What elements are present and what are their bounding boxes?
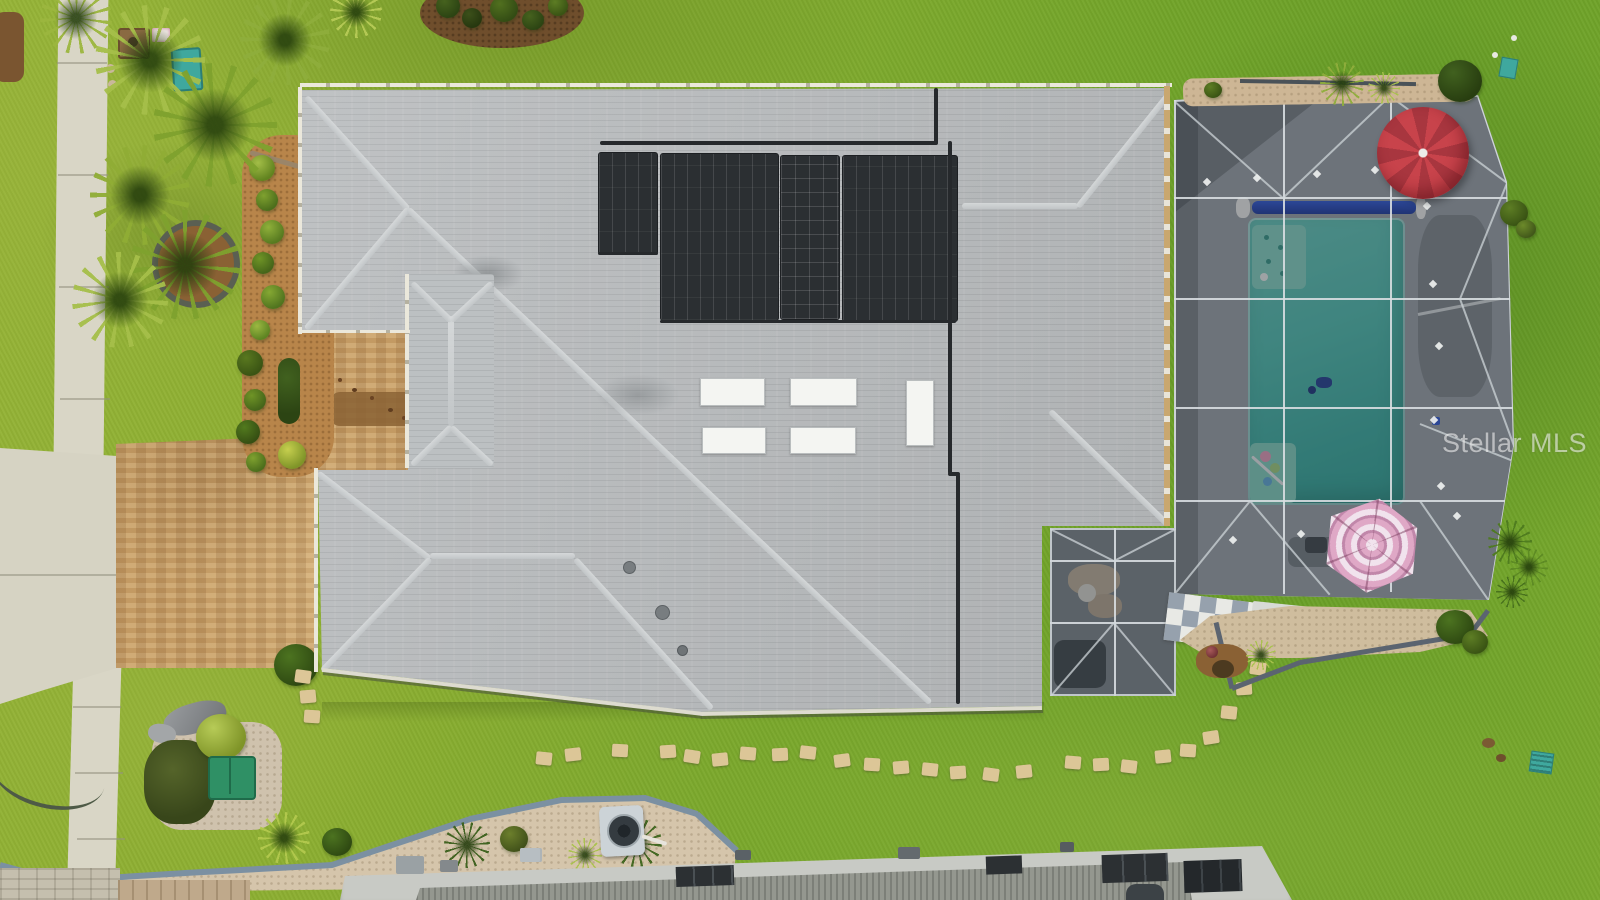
shrub — [256, 189, 278, 211]
solar-panel-array — [598, 152, 658, 255]
roof-equipment — [898, 847, 920, 859]
solar-pipe — [948, 322, 952, 474]
ridge-cap — [430, 553, 575, 559]
side-shrub — [1516, 220, 1536, 238]
solar-pipe — [598, 252, 658, 255]
green-utility-box — [208, 756, 256, 800]
shrub — [237, 350, 263, 376]
cage-mullion — [1283, 95, 1285, 594]
bed-shrub — [1204, 82, 1222, 98]
dark-pit — [1212, 660, 1234, 678]
shrub — [236, 420, 260, 444]
roof-vent — [677, 645, 688, 656]
teal-grate — [1529, 751, 1555, 775]
driveway-apron — [0, 448, 117, 704]
shrub — [261, 285, 285, 309]
ac-fan — [607, 814, 641, 848]
island-plant — [522, 10, 544, 30]
dug-spot — [1496, 754, 1506, 762]
stepping-stone — [535, 751, 552, 766]
stepping-stone — [1154, 749, 1171, 764]
lime-shrub — [196, 714, 246, 760]
stepping-stone — [294, 669, 312, 684]
bed-shrub — [322, 828, 352, 856]
skylight — [790, 378, 857, 406]
green-utility-box-seam — [229, 758, 231, 794]
neighbor-patio-pavers — [118, 880, 250, 900]
skylight — [702, 427, 766, 454]
solar-pipe — [600, 141, 938, 145]
roof-gutter-notch — [300, 330, 410, 333]
stepping-stone — [1220, 705, 1237, 720]
stepping-stone — [1093, 758, 1110, 772]
bed-shrub — [1462, 630, 1488, 654]
teal-box — [1498, 57, 1518, 80]
cage-frame — [1174, 100, 1176, 594]
pool-screen-enclosure — [1168, 85, 1520, 605]
roof-vent — [623, 561, 636, 574]
stepping-stone — [711, 752, 728, 767]
roof-equipment — [735, 850, 751, 860]
ridge-cap — [962, 203, 1078, 209]
stepping-stone — [304, 709, 321, 723]
sprinkler-cap — [1492, 52, 1498, 58]
shrub-column — [278, 358, 300, 424]
roof-stain — [596, 374, 680, 416]
leaf-litter — [370, 396, 374, 400]
driveway-seam — [0, 574, 116, 576]
sidewalk-seam — [73, 706, 121, 708]
sidewalk-seam — [77, 838, 125, 840]
stepping-stone — [864, 757, 881, 771]
solar-panel-array — [660, 153, 779, 321]
stepping-stone — [950, 765, 967, 779]
neighbor-roof-window — [986, 855, 1023, 874]
cage-beam — [1174, 197, 1514, 199]
stepping-stone — [564, 747, 581, 762]
neighbor-roof-window — [1102, 853, 1169, 883]
cage-beam — [1176, 407, 1514, 409]
stepping-stone — [1202, 730, 1220, 745]
stepping-stone — [660, 744, 677, 758]
sidewalk-seam — [60, 398, 110, 400]
neighbor-roof-window — [676, 865, 735, 887]
aerial-photo: Stellar MLS — [0, 0, 1600, 900]
small-equipment-box — [520, 848, 540, 862]
stepping-stone — [683, 749, 701, 764]
palm-frond-tuft — [323, 0, 390, 45]
skylight — [906, 380, 934, 446]
stepping-stone — [982, 767, 1000, 782]
leaf-litter — [388, 408, 393, 412]
solar-pipe — [956, 474, 960, 704]
stepping-stone — [299, 689, 316, 703]
cage-beam — [1176, 500, 1508, 502]
neighbor-patio-pavers — [0, 868, 120, 900]
lanai-frame-border — [1050, 528, 1176, 696]
stepping-stone — [612, 744, 629, 758]
roof-equipment — [396, 856, 424, 874]
roof-gutter-garage — [314, 468, 318, 672]
porch-gutter — [405, 274, 409, 468]
solar-panel-array — [842, 155, 958, 322]
porch-ridge — [448, 316, 454, 426]
roof-gutter-left — [298, 87, 302, 334]
stepping-stone — [1120, 759, 1137, 774]
lanai — [1050, 528, 1176, 696]
shrub — [252, 252, 274, 274]
yellow-shrub — [278, 441, 306, 469]
roof-equipment — [1060, 842, 1074, 852]
leaf-litter — [352, 388, 357, 392]
solar-panel-array — [780, 155, 840, 320]
stepping-stone — [1064, 755, 1081, 769]
sprinkler-cap — [1511, 35, 1517, 41]
shrub — [250, 320, 270, 340]
stepping-stone — [1180, 743, 1197, 757]
neighbor-roof-window — [1183, 859, 1242, 893]
skylight — [790, 427, 856, 454]
solar-pipe — [660, 320, 956, 323]
shrub — [246, 452, 266, 472]
stepping-stone — [921, 762, 938, 777]
roof-vent — [655, 605, 670, 620]
solar-pipe — [934, 88, 938, 144]
stepping-stone — [1015, 764, 1032, 779]
stepping-stone — [799, 745, 816, 760]
leaf-litter — [338, 378, 342, 382]
dark-object-bottom — [1126, 884, 1164, 900]
skylight — [700, 378, 765, 406]
dug-spot — [1482, 738, 1495, 748]
shrub — [260, 220, 284, 244]
bed-shrub — [1438, 60, 1482, 102]
watermark: Stellar MLS — [1442, 428, 1600, 459]
stepping-stone — [892, 760, 909, 774]
shrub — [244, 389, 266, 411]
stepping-stone — [833, 753, 851, 768]
corner-bed — [0, 12, 24, 82]
cage-beam — [1174, 298, 1514, 300]
island-plant — [462, 8, 482, 28]
roof-cage-fascia — [1164, 86, 1170, 526]
roof-gutter-top — [300, 83, 1172, 87]
solar-pipe — [948, 141, 952, 324]
stepping-stone — [739, 746, 756, 760]
roof-equipment — [440, 860, 458, 872]
red-umbrella — [1377, 107, 1469, 199]
red-ball — [1206, 646, 1218, 658]
stepping-stone — [772, 748, 789, 762]
